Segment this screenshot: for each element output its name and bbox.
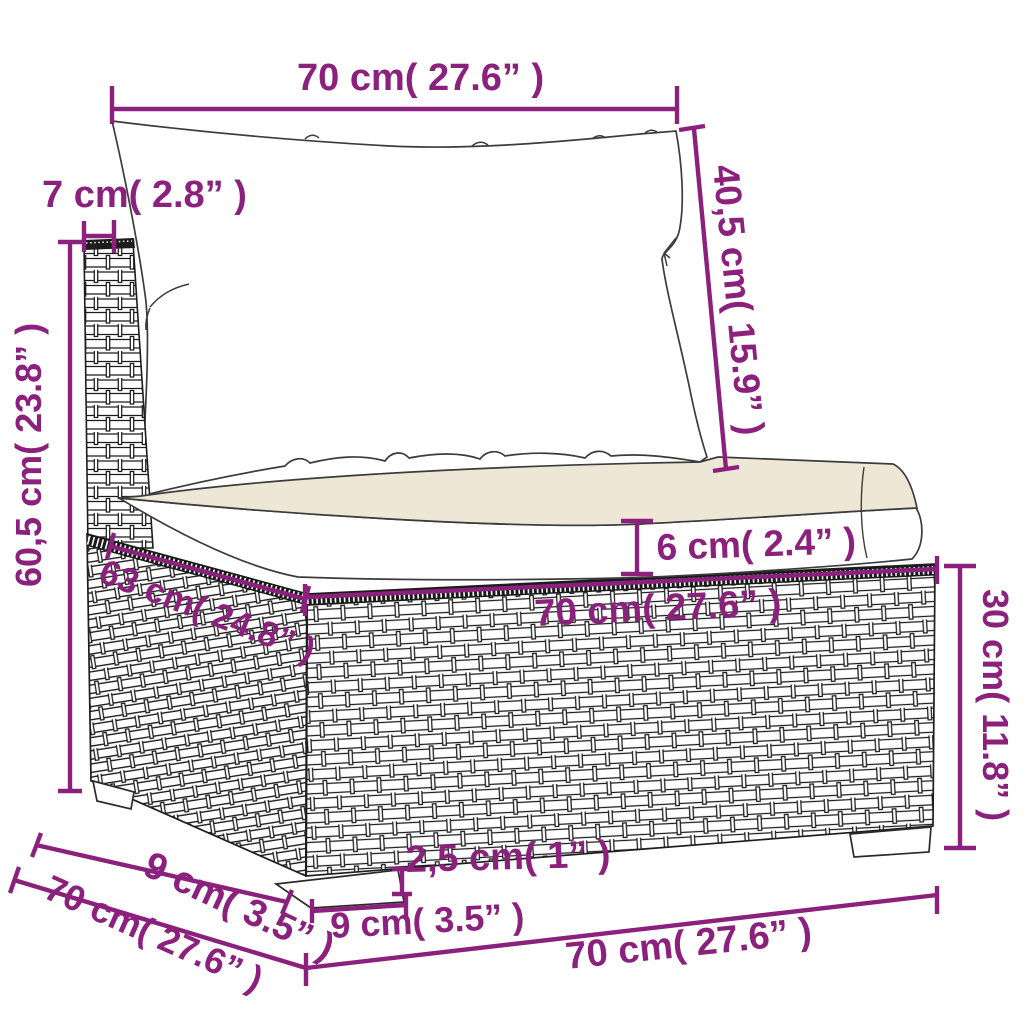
svg-text:7 cm( 2.8” ): 7 cm( 2.8” ) [42, 174, 247, 216]
svg-text:6 cm( 2.4” ): 6 cm( 2.4” ) [656, 520, 857, 568]
svg-text:30 cm( 11.8” ): 30 cm( 11.8” ) [975, 589, 1016, 821]
svg-text:60,5 cm( 23.8” ): 60,5 cm( 23.8” ) [8, 323, 49, 587]
svg-text:70 cm( 27.6” ): 70 cm( 27.6” ) [297, 57, 544, 99]
svg-text:2,5 cm( 1” ): 2,5 cm( 1” ) [405, 834, 611, 881]
